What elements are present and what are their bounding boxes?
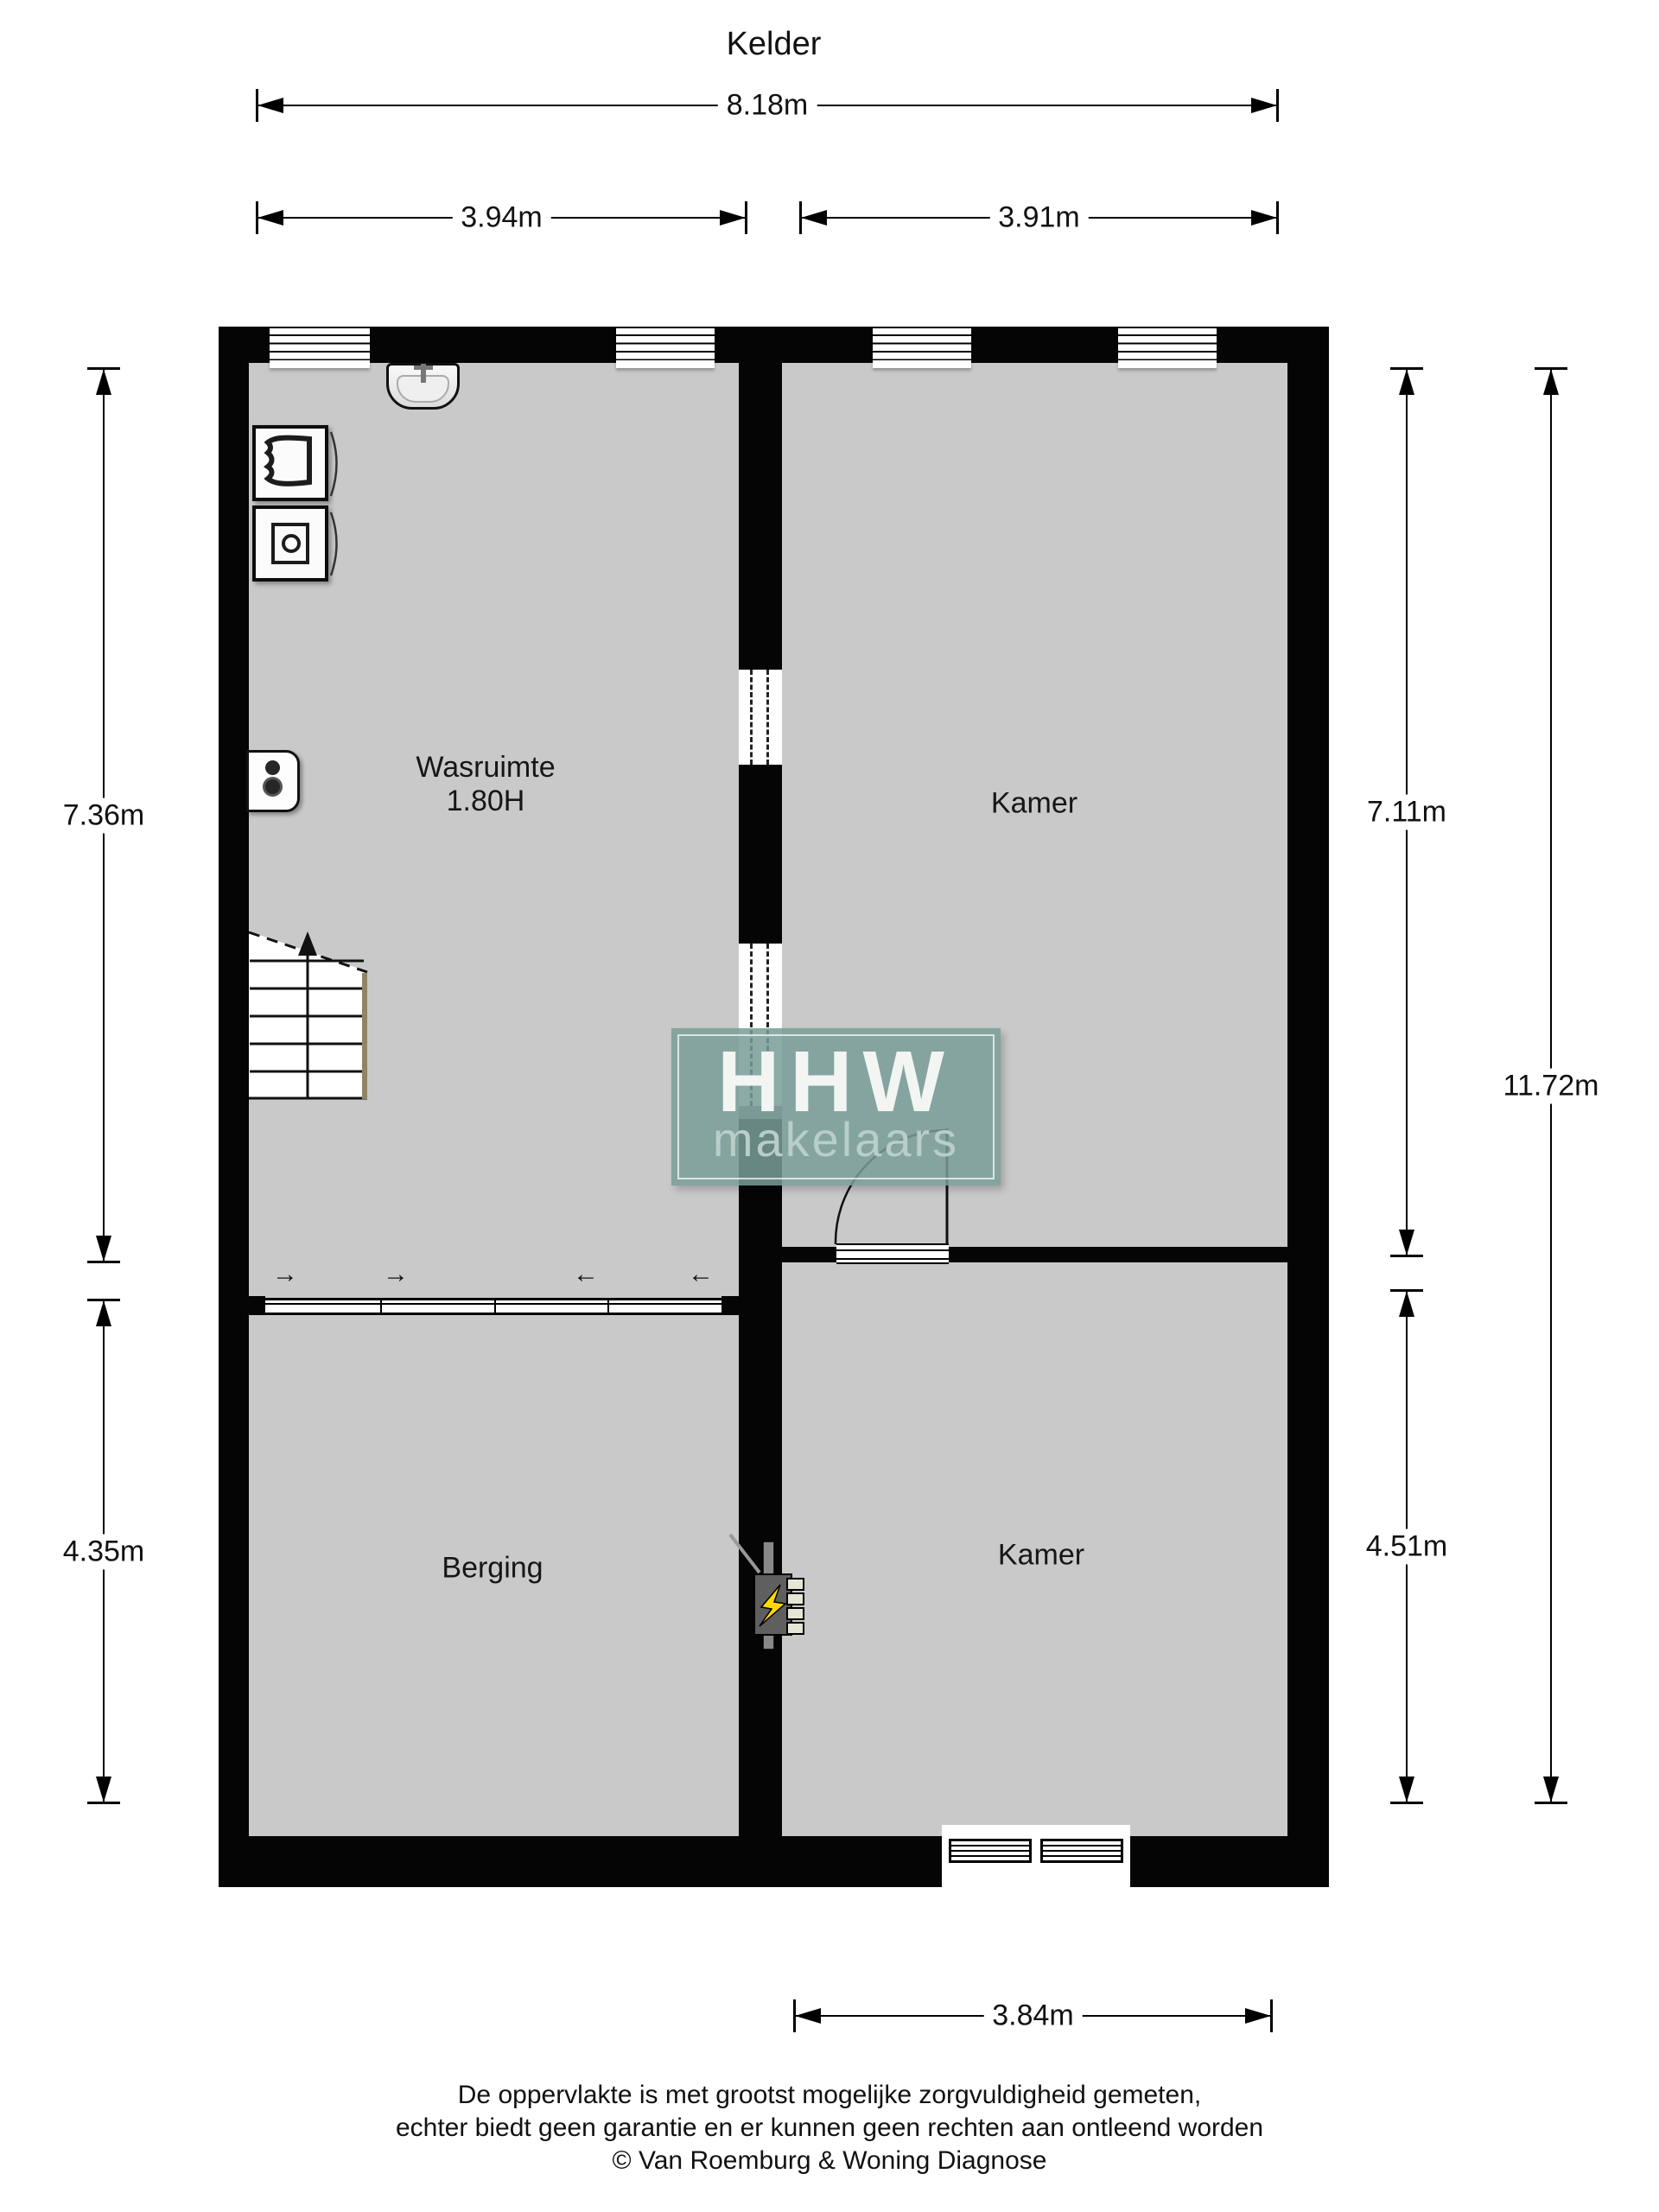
dimension-end-bar <box>87 1802 120 1804</box>
dimension-end-bar <box>1390 1289 1423 1292</box>
dimension-label: 11.72m <box>1495 1068 1608 1103</box>
logo-subtitle: makelaars <box>671 1111 1001 1167</box>
disclaimer: De oppervlakte is met grootst mogelijke … <box>26 2079 1633 2177</box>
arrow-down-icon <box>1399 1230 1414 1255</box>
dimension-end-bar <box>745 201 747 234</box>
arrow-right-icon <box>1245 2008 1271 2024</box>
arrow-up-icon <box>1399 369 1414 395</box>
dimension-end-bar <box>799 201 802 234</box>
dimension-end-bar <box>793 1999 796 2032</box>
dimension-top-left: 3.94m <box>256 200 747 235</box>
dimension-left-lower: 4.35m <box>86 1299 121 1804</box>
arrow-down-icon <box>96 1236 111 1262</box>
dimension-top-total: 8.18m <box>256 88 1279 123</box>
arrow-up-icon <box>1399 1291 1414 1317</box>
arrow-left-icon <box>257 98 283 113</box>
page-title: Kelder <box>219 26 1329 63</box>
dimension-label: 3.94m <box>452 200 551 236</box>
arrow-down-icon <box>1399 1777 1414 1802</box>
agency-logo: HHW makelaars <box>671 1028 1001 1185</box>
dimension-label: 7.11m <box>1358 795 1455 830</box>
electrical-panel-icon <box>730 1535 804 1649</box>
dimension-right-lower: 4.51m <box>1389 1289 1424 1804</box>
copyright-line: © Van Roemburg & Woning Diagnose <box>26 2145 1633 2177</box>
arrow-right-icon <box>1251 98 1277 113</box>
room-label-kamer-bottom: Kamer <box>998 1539 1084 1573</box>
dimension-label: 4.35m <box>54 1534 154 1569</box>
dimension-end-bar <box>87 1261 120 1263</box>
dimension-label: 8.18m <box>718 88 817 124</box>
disclaimer-line: echter biedt geen garantie en er kunnen … <box>26 2112 1633 2145</box>
stairs-icon <box>249 931 367 1099</box>
dimension-end-bar <box>256 89 258 122</box>
dimension-bottom: 3.84m <box>793 1999 1273 2033</box>
appliance-arc <box>331 512 337 575</box>
dimension-end-bar <box>1390 367 1423 370</box>
dimension-end-bar <box>1276 89 1279 122</box>
arrow-left-icon <box>257 210 283 226</box>
stairs-up-arrow-icon <box>298 931 317 956</box>
dimension-label: 3.84m <box>983 1999 1083 2034</box>
dimension-end-bar <box>1535 1802 1567 1804</box>
dimension-end-bar <box>1535 367 1567 370</box>
dimension-end-bar <box>1270 1999 1273 2032</box>
arrow-left-icon <box>801 210 827 226</box>
dimension-label: 7.36m <box>54 798 154 833</box>
dimension-left-upper: 7.36m <box>86 367 121 1263</box>
dimension-right-total: 11.72m <box>1534 367 1568 1804</box>
arrow-down-icon <box>1543 1777 1559 1802</box>
arrow-right-icon <box>720 210 746 226</box>
arrow-up-icon <box>96 1300 111 1326</box>
arrow-up-icon <box>96 369 111 395</box>
arrow-up-icon <box>1543 369 1559 395</box>
appliance-arc <box>331 432 337 496</box>
dimension-end-bar <box>87 1299 120 1301</box>
dimension-end-bar <box>1276 201 1279 234</box>
room-label-berging: Berging <box>442 1552 543 1586</box>
arrow-down-icon <box>96 1777 111 1802</box>
arrow-right-icon <box>1251 210 1277 226</box>
arrow-left-icon <box>795 2008 821 2024</box>
dimension-right-upper: 7.11m <box>1389 367 1424 1257</box>
disclaimer-line: De oppervlakte is met grootst mogelijke … <box>26 2079 1633 2112</box>
dimension-end-bar <box>256 201 258 234</box>
dimension-end-bar <box>1390 1802 1423 1804</box>
room-label-wasruimte: Wasruimte 1.80H <box>416 751 555 818</box>
dimension-label: 3.91m <box>989 200 1089 236</box>
dimension-top-right: 3.91m <box>799 200 1279 235</box>
room-label-kamer-top: Kamer <box>991 787 1077 821</box>
dimension-label: 4.51m <box>1357 1529 1457 1565</box>
dimension-end-bar <box>87 367 120 370</box>
dimension-end-bar <box>1390 1255 1423 1257</box>
